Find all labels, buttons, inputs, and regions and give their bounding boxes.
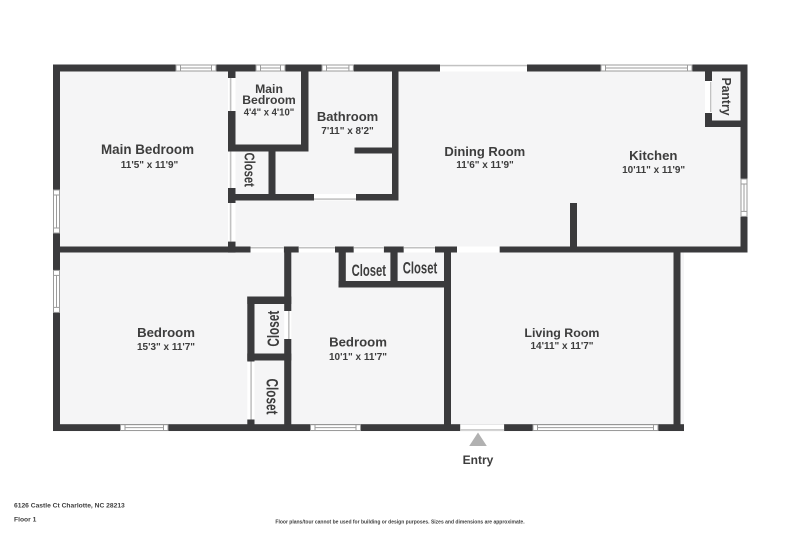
svg-text:Pantry: Pantry bbox=[719, 77, 735, 115]
svg-text:Bathroom: Bathroom bbox=[317, 109, 378, 124]
svg-text:7'11" x 8'2": 7'11" x 8'2" bbox=[321, 126, 374, 137]
svg-text:Closet: Closet bbox=[262, 379, 280, 415]
svg-text:Bedroom: Bedroom bbox=[137, 325, 195, 340]
svg-text:Floor plans/tour cannot be use: Floor plans/tour cannot be used for buil… bbox=[275, 520, 525, 526]
svg-text:Closet: Closet bbox=[403, 259, 438, 278]
svg-text:Closet: Closet bbox=[265, 311, 283, 347]
svg-text:Kitchen: Kitchen bbox=[629, 148, 677, 163]
svg-text:Floor 1: Floor 1 bbox=[14, 517, 37, 524]
svg-text:10'1" x 11'7": 10'1" x 11'7" bbox=[329, 352, 387, 363]
svg-text:11'6" x 11'9": 11'6" x 11'9" bbox=[456, 160, 514, 171]
svg-text:14'11" x 11'7": 14'11" x 11'7" bbox=[531, 341, 594, 352]
svg-text:Closet: Closet bbox=[241, 152, 258, 187]
svg-text:10'11" x 11'9": 10'11" x 11'9" bbox=[622, 165, 685, 176]
svg-text:Living Room: Living Room bbox=[524, 326, 599, 340]
svg-text:15'3" x 11'7": 15'3" x 11'7" bbox=[137, 342, 195, 353]
svg-text:4'4" x 4'10": 4'4" x 4'10" bbox=[244, 107, 294, 118]
svg-text:11'5" x 11'9": 11'5" x 11'9" bbox=[121, 160, 179, 171]
svg-text:6126 Castle Ct Charlotte, NC 2: 6126 Castle Ct Charlotte, NC 28213 bbox=[14, 503, 125, 510]
svg-text:Bedroom: Bedroom bbox=[329, 335, 387, 350]
svg-text:Main Bedroom: Main Bedroom bbox=[101, 142, 194, 157]
svg-text:Closet: Closet bbox=[352, 262, 387, 281]
svg-text:Entry: Entry bbox=[463, 453, 494, 467]
svg-text:Dining Room: Dining Room bbox=[444, 144, 525, 159]
svg-text:Bedroom: Bedroom bbox=[242, 93, 296, 107]
